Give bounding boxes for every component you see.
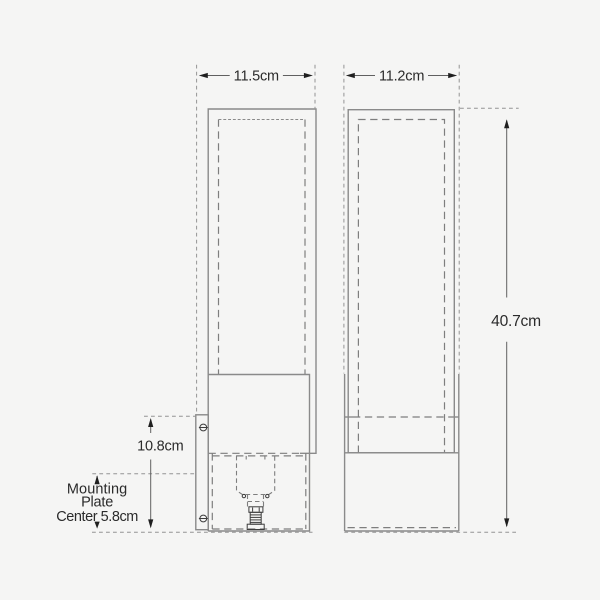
svg-text:10.8cm: 10.8cm (137, 439, 183, 455)
svg-text:40.7cm: 40.7cm (491, 313, 541, 330)
svg-text:Center 5.8cm: Center 5.8cm (56, 509, 138, 525)
svg-text:11.5cm: 11.5cm (234, 69, 279, 85)
svg-text:11.2cm: 11.2cm (379, 69, 424, 85)
